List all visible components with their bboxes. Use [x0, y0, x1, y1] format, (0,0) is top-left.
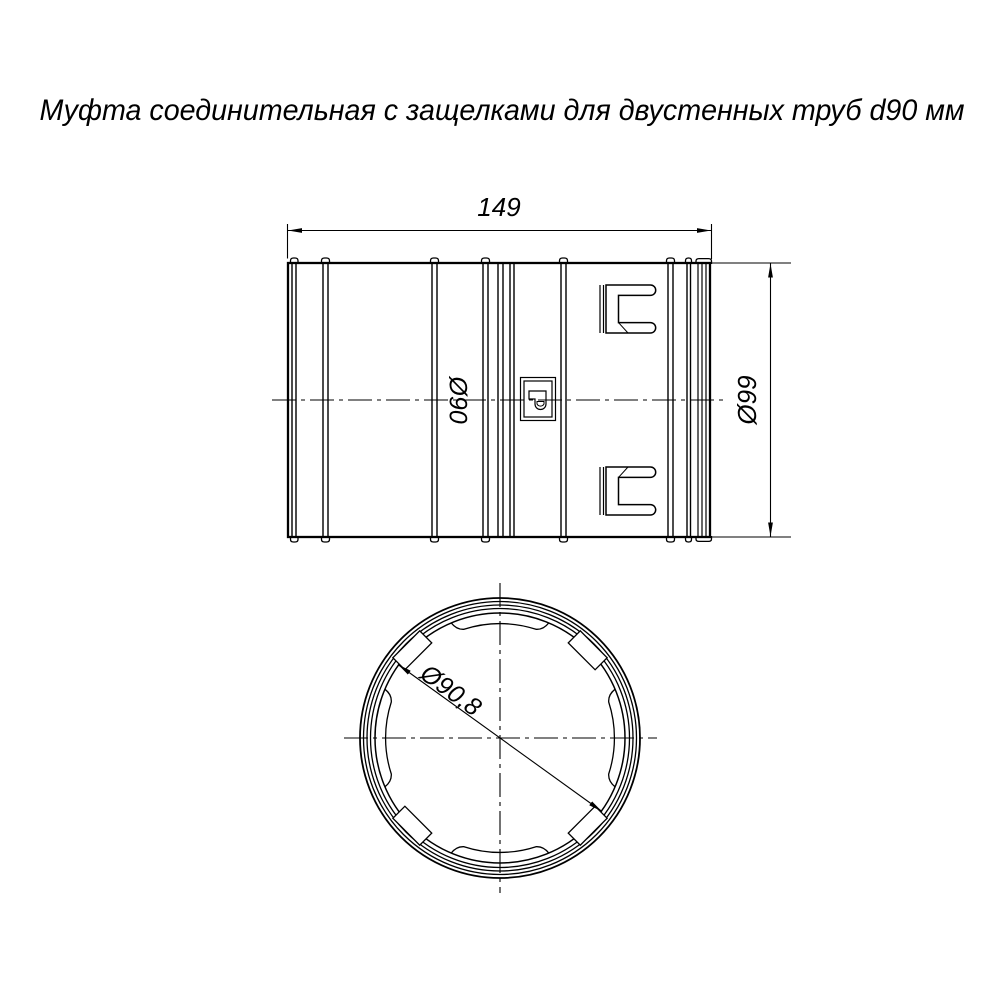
logo-mark	[521, 378, 556, 421]
dim-text-149: 149	[477, 192, 520, 222]
label-inner-diameter: Ø90	[444, 375, 472, 423]
technical-drawing-canvas: Муфта соединительная с защелками для дву…	[0, 0, 1000, 1000]
drawing-page: Муфта соединительная с защелками для дву…	[0, 0, 1000, 1000]
dim-text-d99: Ø99	[732, 375, 762, 425]
side-view: Ø90	[272, 258, 723, 542]
drawing-title: Муфта соединительная с защелками для дву…	[40, 94, 965, 127]
